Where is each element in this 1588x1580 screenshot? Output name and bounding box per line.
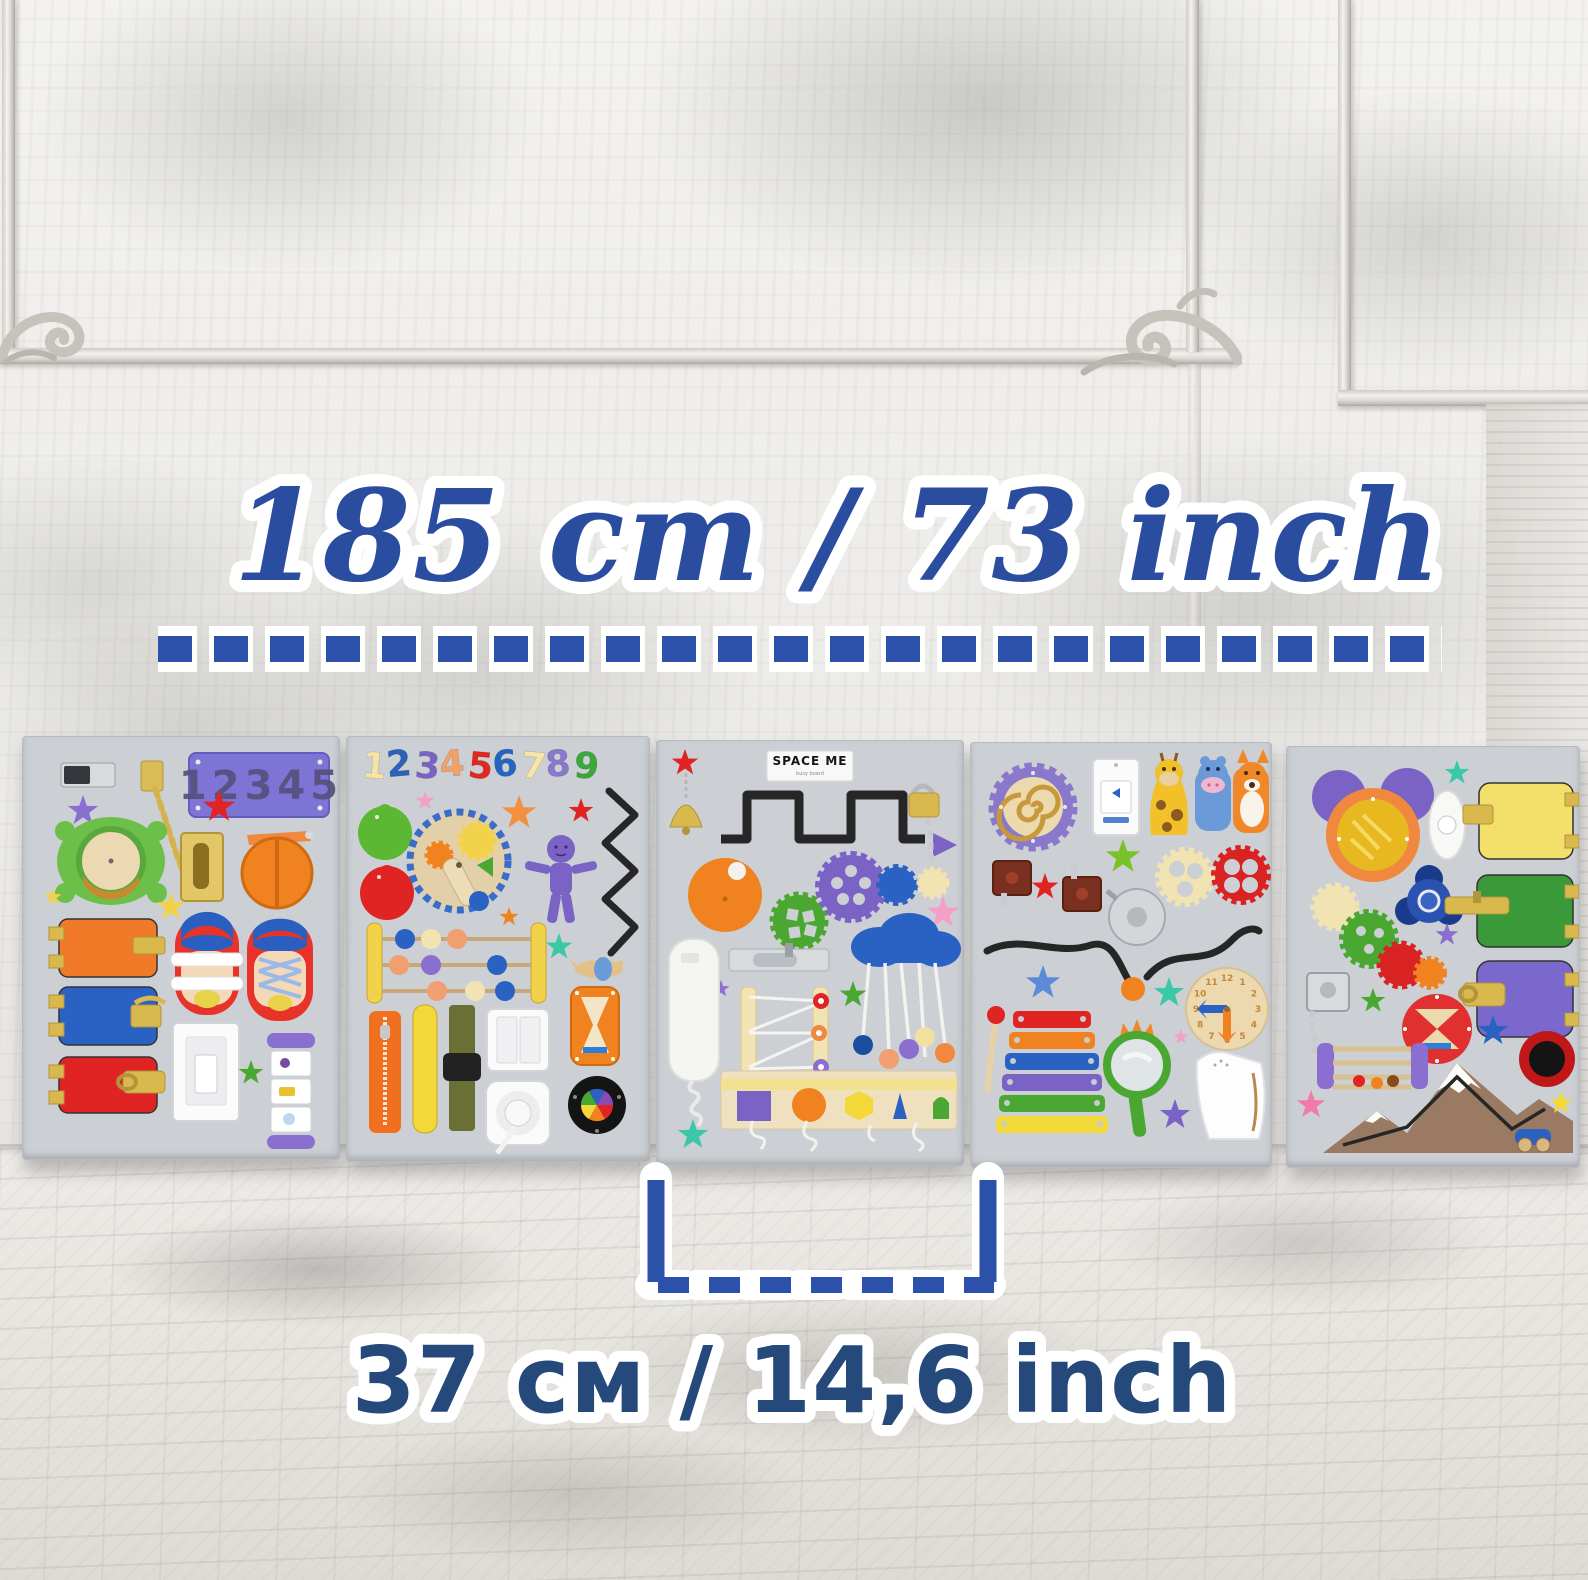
cream-gear [1159, 851, 1211, 903]
busy-board-1: 12345 [22, 736, 340, 1160]
brown-latch [1063, 865, 1101, 911]
green-star-icon [840, 981, 867, 1006]
red-star-icon [569, 798, 594, 822]
green-pear-knob [358, 804, 412, 860]
brass-bell [670, 773, 702, 835]
learning-clock: 121234567891011 [1186, 968, 1268, 1050]
yellow-strap [413, 1005, 437, 1133]
pink-star-icon [1297, 1090, 1326, 1117]
wooden-number-9: 9 [572, 745, 601, 788]
wooden-airplane [569, 957, 623, 981]
brown-latch [993, 861, 1031, 907]
giraffe-finger-puppet [1150, 753, 1188, 835]
squeeze-horn [1519, 1031, 1575, 1087]
clock-numeral-1: 1 [1239, 978, 1245, 988]
number-plaque: 12345 [179, 753, 339, 821]
red-star-icon [1032, 873, 1059, 898]
pink-star-icon [1173, 1029, 1188, 1043]
door-guard-latch [181, 833, 223, 901]
square-wave-track [721, 795, 925, 839]
picture-cube-spinner [267, 1033, 315, 1149]
hourglass [571, 987, 619, 1065]
night-light [1197, 1052, 1265, 1139]
purple-star-icon [1160, 1099, 1190, 1128]
brand-text: SPACE ME [773, 754, 848, 768]
barrel-bolt [729, 943, 829, 971]
purple-door-with-hasp [1460, 961, 1579, 1037]
wall-molding-right-vertical [1338, 0, 1351, 396]
green-door-with-bolt [1445, 875, 1579, 947]
shape-sorting-panel [721, 1071, 957, 1151]
purple-gear [819, 855, 883, 919]
red-gear [1215, 849, 1267, 901]
gear-clock [410, 812, 508, 911]
molding-ornament-right [1062, 276, 1242, 386]
clock-numeral-11: 11 [1205, 978, 1218, 988]
mickey-sequin-disc [1312, 768, 1434, 882]
busy-board-4: 121234567891011 [970, 742, 1272, 1168]
chrome-bell [1107, 889, 1165, 945]
wooden-number-4: 4 [438, 743, 467, 786]
padlock-with-chain [909, 786, 939, 869]
green-gear [773, 895, 825, 947]
teal-star-icon [678, 1119, 708, 1148]
clock-numeral-8: 8 [1197, 1021, 1203, 1031]
busy-board-3: SPACE ME busy board [656, 740, 964, 1166]
wooden-number-2: 2 [385, 743, 414, 786]
busy-board-product-photo: 12345 [0, 0, 1588, 1580]
clock-numeral-2: 2 [1251, 990, 1257, 1000]
turtle-sand-window [55, 817, 167, 905]
wooden-number-8: 8 [544, 743, 573, 786]
wall-molding-center-vertical-lower [1188, 364, 1201, 664]
doorbell-button [1093, 759, 1139, 835]
clock-numeral-12: 12 [1221, 974, 1234, 984]
purple-triangle [933, 833, 957, 857]
crown-mirror [1107, 1019, 1167, 1138]
phone-handset [669, 939, 719, 1148]
lock-with-chain [1307, 973, 1349, 1055]
green-star-icon [239, 1060, 264, 1084]
purple-star-icon [1436, 923, 1459, 945]
zigzag-track [605, 791, 635, 953]
molding-ornament-left [0, 292, 100, 374]
red-star-icon [672, 749, 699, 774]
fox-finger-puppet [1233, 749, 1269, 833]
abacus-beads [367, 923, 546, 1003]
chrome-slide-latch [61, 763, 115, 787]
lace-up-sneaker [247, 919, 313, 1021]
green-star-icon [1361, 988, 1386, 1012]
busy-board-2: 123456789 [346, 736, 650, 1162]
green-star-icon [1106, 839, 1140, 872]
double-light-switch [487, 1009, 549, 1071]
teal-star-icon [546, 933, 573, 958]
clock-numeral-10: 10 [1194, 990, 1207, 1000]
orange-star-icon [500, 907, 519, 925]
fidget-spinner [1395, 865, 1463, 925]
red-balloon-knob [360, 865, 414, 920]
plaque-number-text: 12345 [179, 763, 339, 809]
orange-disc [688, 858, 762, 932]
velcro-sandal [171, 912, 243, 1015]
blue-door-with-hook [49, 987, 165, 1045]
xylophone-with-mallet [987, 1006, 1108, 1133]
socket-with-plug [486, 1081, 550, 1153]
buckle-strap [443, 1005, 481, 1131]
cloud-bead-mobile [851, 913, 961, 1069]
hippo-finger-puppet [1195, 756, 1231, 831]
blue-gear [879, 867, 915, 903]
brand-subtitle-text: busy board [796, 771, 824, 777]
whitewashed-floor [0, 1148, 1588, 1580]
elastic-lacing-board [741, 987, 829, 1075]
orange-gear [1416, 959, 1444, 987]
cream-gear [919, 869, 947, 897]
yellow-door-with-latch [1463, 783, 1579, 859]
clock-numeral-7: 7 [1208, 1032, 1214, 1042]
brand-label: SPACE ME busy board [767, 751, 853, 781]
red-door-with-hasp [49, 1057, 165, 1113]
clock-numeral-3: 3 [1255, 1005, 1261, 1015]
oval-doorbell [1429, 791, 1465, 859]
wooden-numbers-row: 123456789 [360, 743, 601, 788]
pink-star-icon [416, 791, 435, 809]
sequin-spiral-gear [993, 767, 1073, 847]
orange-star-icon [502, 795, 536, 828]
busy-board-5 [1286, 746, 1580, 1168]
color-wheel [568, 1076, 626, 1134]
teal-star-icon [1445, 760, 1470, 784]
orange-door-with-latch [49, 919, 165, 977]
clock-numeral-4: 4 [1251, 1021, 1257, 1031]
zipper [369, 1011, 401, 1133]
wall-molding-left-rail [0, 348, 1238, 364]
bead-rattle-drum [1317, 1043, 1428, 1089]
purple-doll [524, 835, 598, 924]
blue-star-icon [1026, 965, 1060, 998]
clock-numeral-5: 5 [1239, 1032, 1245, 1042]
orange-spinning-wheel [242, 831, 313, 908]
wooden-number-6: 6 [491, 743, 520, 786]
light-switch [173, 1023, 239, 1121]
teal-star-icon [1154, 977, 1184, 1006]
